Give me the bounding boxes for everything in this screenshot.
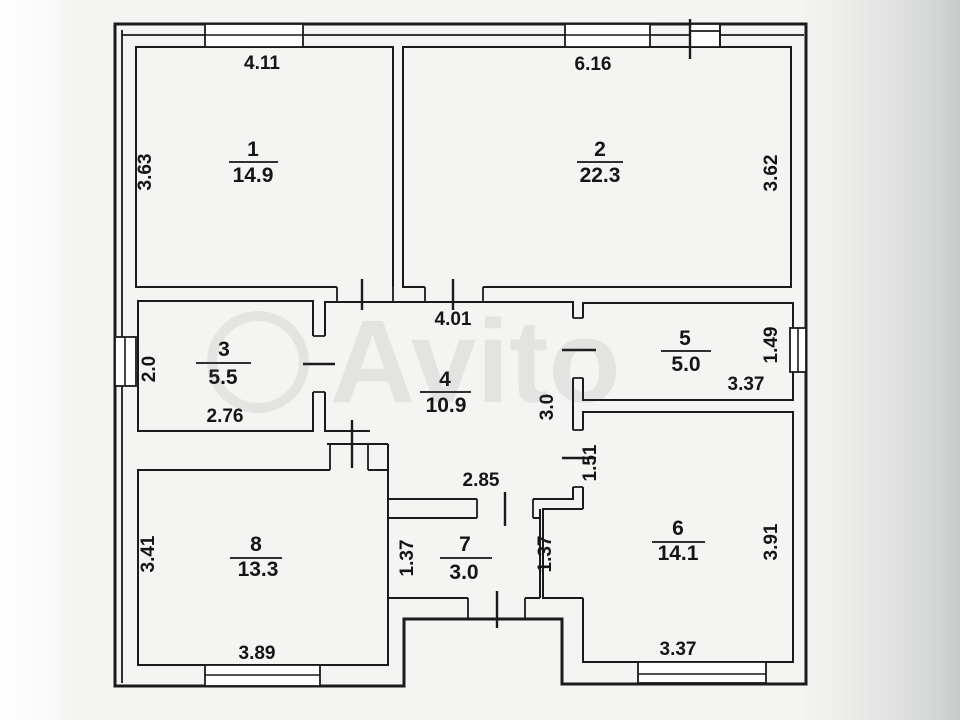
- room-7-area: 3.0: [449, 561, 478, 584]
- room-3-dim-left: 2.0: [139, 356, 160, 382]
- room-5-area: 5.0: [671, 353, 700, 376]
- room-7-dim-right: 1.37: [535, 536, 556, 573]
- room-6-dim-bottom: 3.37: [660, 639, 697, 660]
- room-8-dim-left: 3.41: [138, 535, 159, 572]
- room-3-dim-bottom: 2.76: [207, 406, 244, 427]
- room-6-dim-right: 3.91: [761, 523, 782, 560]
- window-room6-bottom: [638, 662, 766, 683]
- room-5-number: 5: [679, 327, 691, 350]
- room-2-dim-top: 6.16: [575, 54, 612, 75]
- room-8-area: 13.3: [238, 558, 279, 581]
- watermark-logo-icon: [212, 316, 304, 408]
- room-8-number: 8: [250, 533, 262, 556]
- floor-plan: 1 14.9 4.11 3.63 2 22.3 6.16 3.62 3 5.5 …: [0, 0, 960, 720]
- room-2-number: 2: [594, 138, 606, 161]
- room-2-area: 22.3: [580, 164, 621, 187]
- room-6-area: 14.1: [658, 542, 699, 565]
- room-1-area: 14.9: [233, 164, 274, 187]
- room-8-dim-bottom: 3.89: [239, 643, 276, 664]
- flue-box: [690, 24, 720, 47]
- room-2-dim-right: 3.62: [761, 155, 782, 192]
- room-4-dim-bottom: 2.85: [463, 470, 500, 491]
- room-7-number: 7: [459, 533, 471, 556]
- room-4-dim-right-lower: 1.51: [580, 444, 601, 481]
- room-1-dim-left: 3.63: [135, 154, 156, 191]
- room-6-number: 6: [672, 517, 684, 540]
- floor-plan-photo: 1 14.9 4.11 3.63 2 22.3 6.16 3.62 3 5.5 …: [0, 0, 960, 720]
- room-1-dim-top: 4.11: [244, 53, 280, 74]
- room-1-number: 1: [247, 138, 259, 161]
- room-5-dim-right: 1.49: [761, 327, 782, 364]
- room-5-dim-bottom: 3.37: [728, 374, 765, 395]
- door-room8: [330, 444, 368, 470]
- watermark: Avito: [212, 296, 621, 428]
- watermark-text: Avito: [330, 296, 621, 428]
- room-7-dim-left: 1.37: [397, 540, 418, 577]
